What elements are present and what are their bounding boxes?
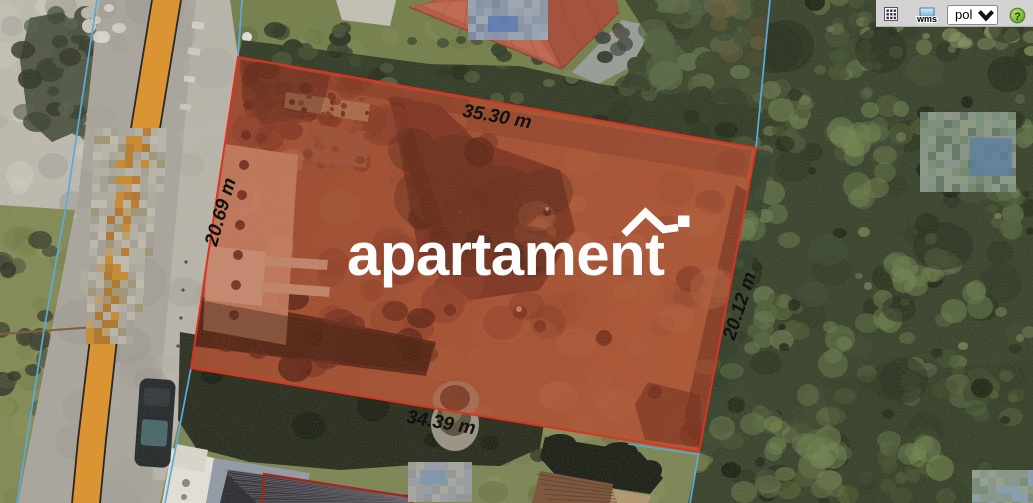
- svg-text:apartament: apartament: [347, 221, 665, 288]
- svg-text:wms: wms: [916, 14, 937, 24]
- svg-text:pol: pol: [955, 7, 972, 22]
- svg-text:?: ?: [1014, 11, 1021, 23]
